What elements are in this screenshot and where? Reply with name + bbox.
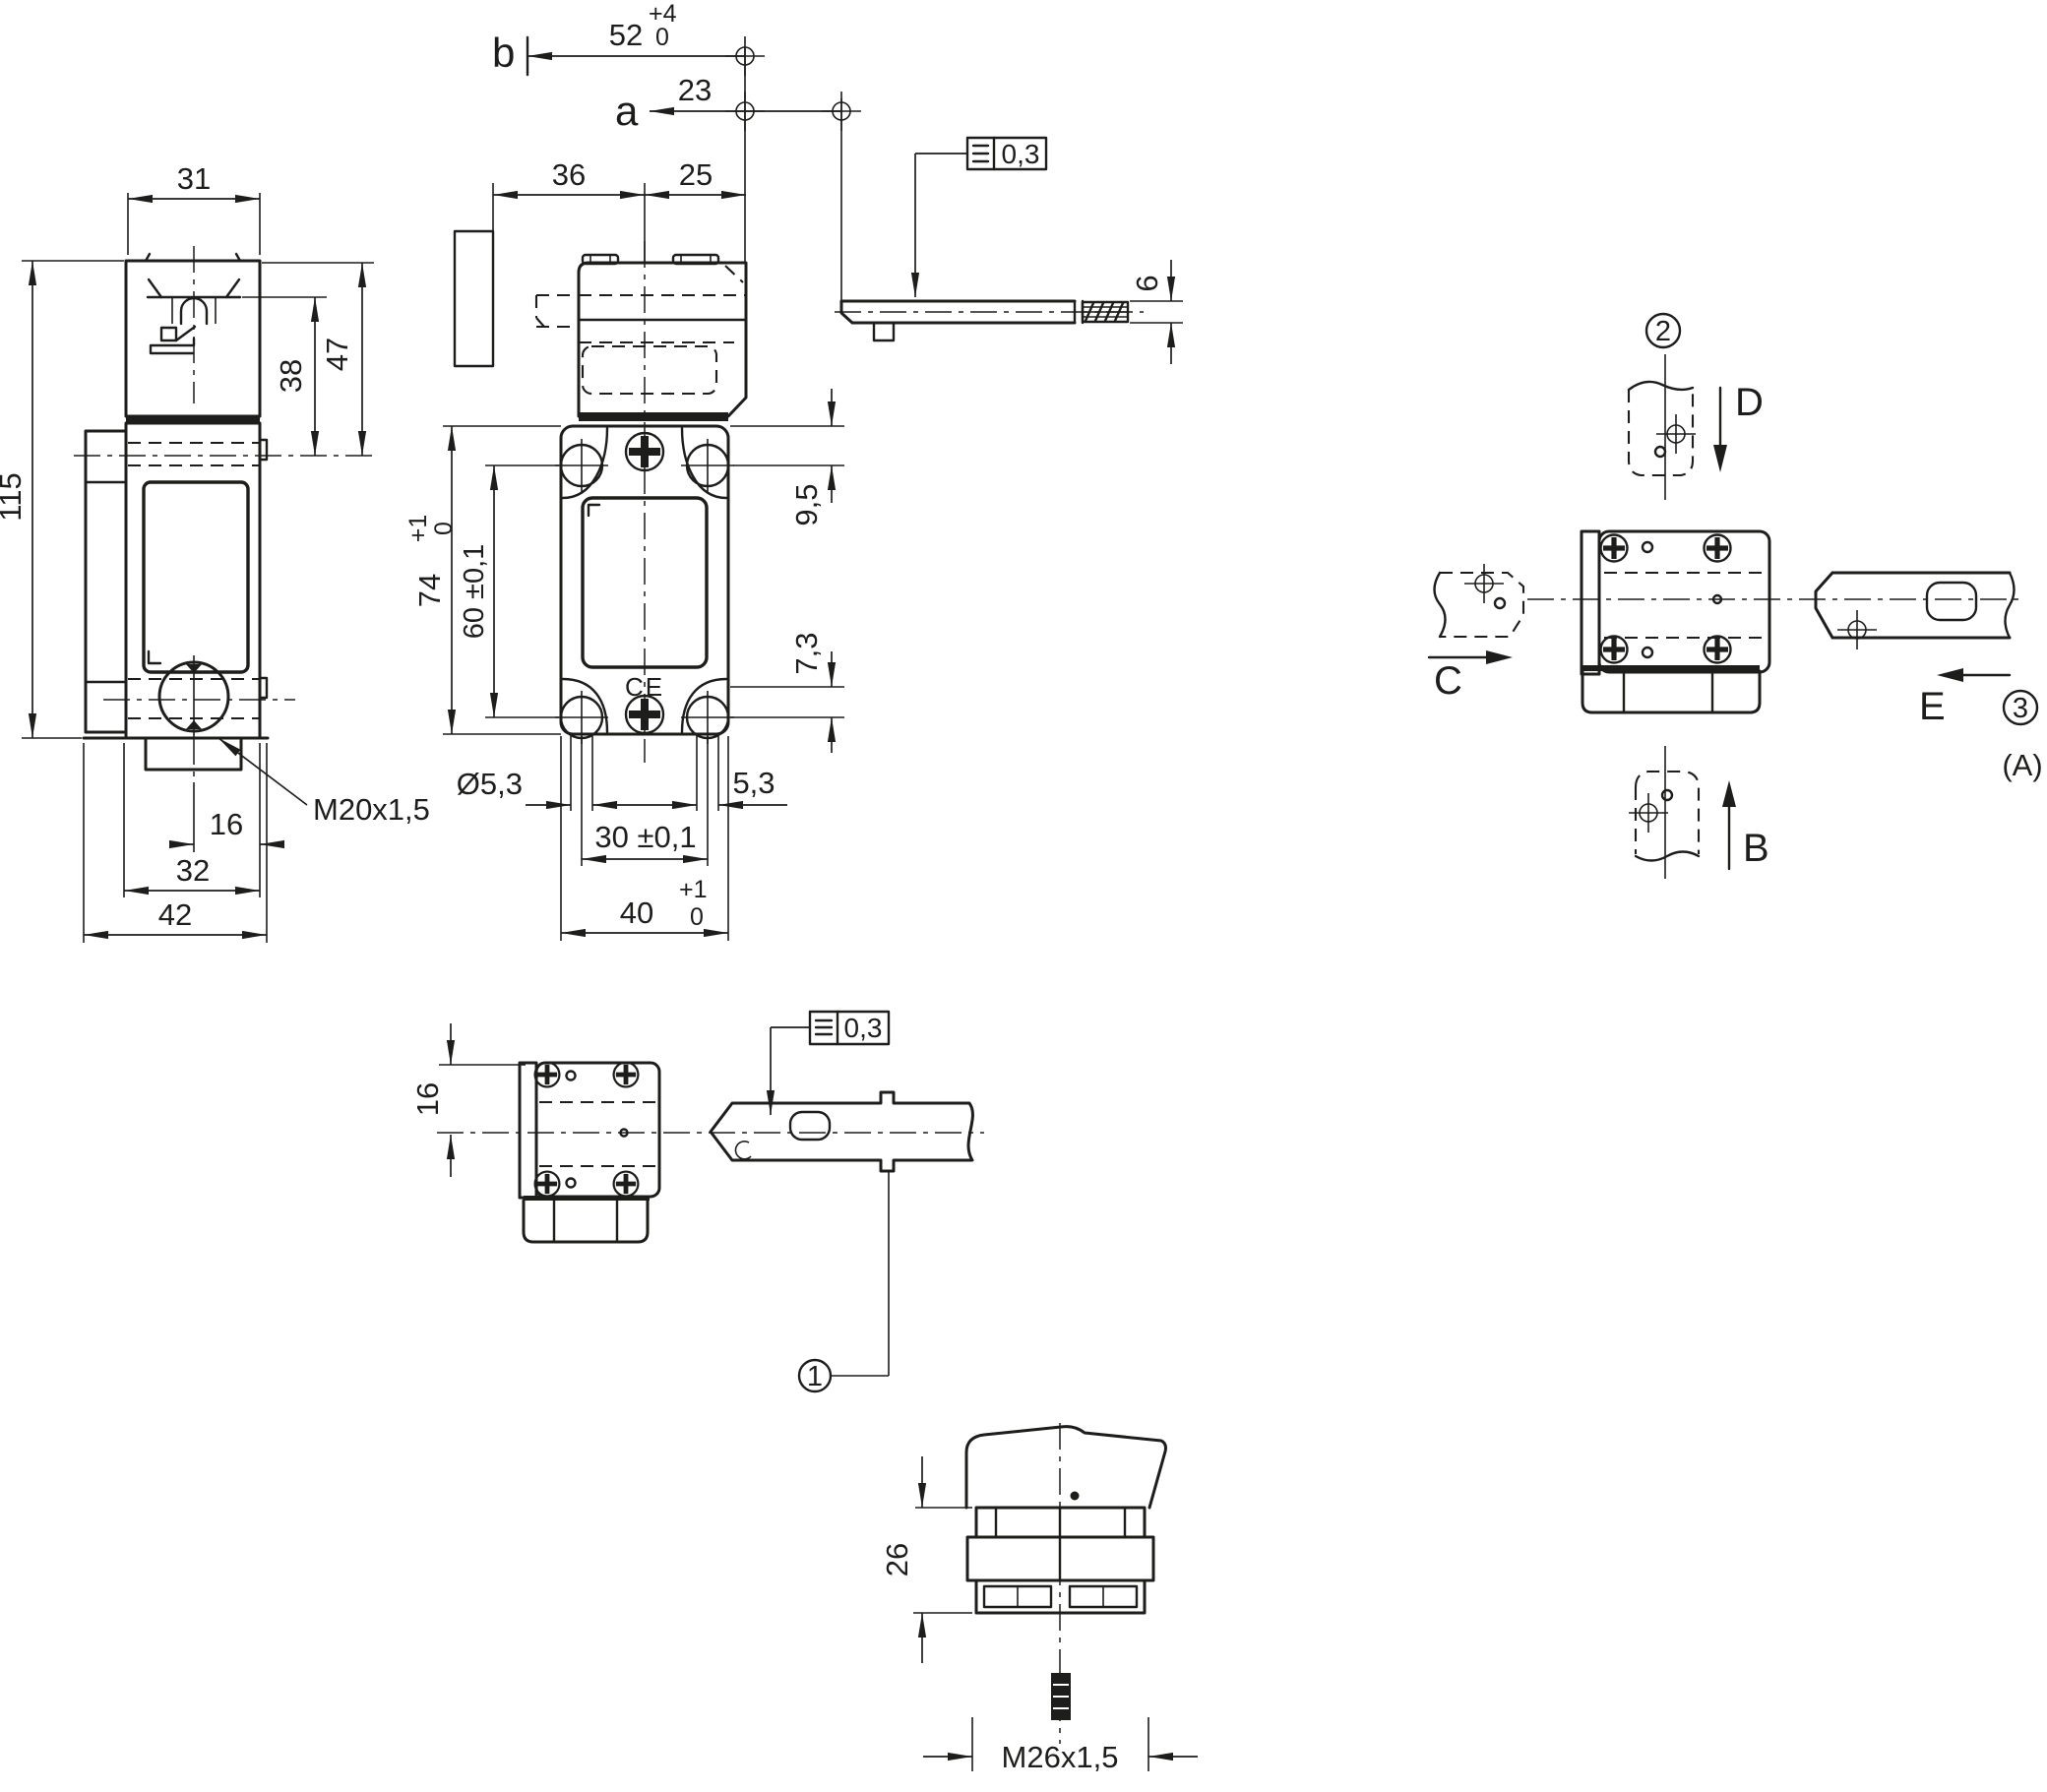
callout-2: 2	[1646, 314, 1680, 347]
dim-body-width-tol-upper: +1	[679, 876, 708, 903]
dim-body-height: 74	[412, 574, 447, 607]
direction-c-label: C	[1434, 659, 1462, 703]
dim-slot-width: 5,3	[732, 766, 775, 800]
dim-wall-to-center: 36	[552, 157, 586, 192]
dim-total-height: 115	[0, 472, 28, 521]
position-target-icon	[1837, 610, 1877, 649]
label-a: a	[615, 88, 639, 134]
ref-a-label: (A)	[2002, 748, 2042, 782]
position-target-icon	[1464, 564, 1504, 603]
callout-3: 3 (A)	[2002, 691, 2042, 782]
tolerance-frame: 0,3	[915, 138, 1046, 297]
front-view-dimensions: 74 +1 0 60 ±0,1 9,5 7,3 Ø5,3 5,3 30 ±0,1	[404, 389, 844, 941]
dim-hole-pitch-vertical: 60 ±0,1	[459, 544, 490, 640]
callout-3-number: 3	[2013, 693, 2028, 724]
ce-mark: CE	[625, 672, 664, 702]
dim-hole-pitch-horizontal: 30 ±0,1	[594, 820, 696, 854]
dim-half-height: 16	[410, 1082, 445, 1116]
phillips-screw-icon	[626, 433, 663, 470]
arrow-down-icon	[1713, 445, 1727, 472]
dim-gland-offset: 16	[210, 807, 243, 841]
dim-body-height-tol-lower: 0	[430, 522, 458, 535]
tolerance-value: 0,3	[1002, 139, 1040, 169]
dim-body-width-tol-lower: 0	[690, 903, 704, 931]
dim-hole-top-offset: 9,5	[789, 483, 824, 525]
dim-travel-b-tol-lower: 0	[655, 24, 669, 51]
head-top-view	[520, 1063, 659, 1242]
half-height-dimension: 16	[410, 1023, 526, 1177]
dim-body-width: 40	[620, 896, 653, 930]
direction-e: E	[1919, 668, 2010, 728]
dim-total-width: 42	[158, 897, 192, 932]
technical-drawing-page: 31 47 38 115 M20x1,5 16 32 42	[0, 0, 2047, 1792]
tolerance-frame: 0,3	[771, 1012, 889, 1115]
phillips-screw-icon	[535, 1063, 560, 1087]
phillips-screw-icon	[1705, 637, 1731, 663]
dim-head-height: 47	[320, 338, 354, 371]
dim-body-height-tol-upper: +1	[404, 515, 432, 543]
top-view: 16 0,3	[410, 1012, 984, 1392]
arrow-left-icon	[1937, 668, 1963, 682]
actuator-side-view: 0,3 6	[835, 138, 1183, 364]
phillips-screw-icon	[614, 1063, 639, 1087]
callout-2-number: 2	[1655, 316, 1671, 347]
front-view: b 52 +4 0 a 23 36 25	[404, 0, 861, 941]
head-top-view	[1527, 531, 2025, 712]
dim-travel-a: 23	[678, 73, 712, 107]
dim-body-width: 32	[176, 853, 210, 888]
dim-lever-height: 38	[274, 359, 308, 393]
actuator-from-left	[1435, 564, 1524, 637]
callout-1: 1	[799, 1171, 889, 1392]
dim-hole-bottom-offset: 7,3	[789, 632, 824, 674]
side-view-dimensions: 31 47 38 115 M20x1,5 16 32 42	[0, 161, 430, 943]
direction-b: B	[1722, 780, 1769, 870]
mounting-wall-hatch	[455, 231, 493, 366]
symmetry-symbol-icon	[973, 146, 988, 161]
phillips-screw-icon	[1601, 637, 1628, 663]
seal-band	[579, 412, 728, 421]
phillips-screw-icon	[1705, 535, 1731, 562]
phillips-screw-icon	[535, 1172, 560, 1197]
dim-hole-diameter: Ø5,3	[457, 767, 523, 801]
thickness-dimension: 6	[1130, 260, 1183, 364]
dim-depth: 26	[880, 1543, 914, 1576]
dimension-drawing-canvas: 31 47 38 115 M20x1,5 16 32 42	[0, 0, 2047, 1792]
orientation-diagram: 2 D	[1429, 314, 2043, 879]
side-view-body	[74, 423, 374, 782]
dim-center-to-face: 25	[679, 157, 713, 192]
symmetry-symbol-icon	[816, 1020, 832, 1034]
actuator-from-bottom	[1629, 746, 1699, 879]
side-view: 31 47 38 115 M20x1,5 16 32 42	[0, 161, 430, 943]
direction-e-label: E	[1919, 685, 1946, 728]
phillips-screw-icon	[1601, 535, 1628, 562]
housing-bottom-wedge	[966, 1427, 1166, 1508]
direction-d-label: D	[1735, 381, 1764, 424]
actuator-top-view	[711, 1092, 972, 1171]
tolerance-value: 0,3	[844, 1013, 883, 1043]
dim-travel-b: 52	[609, 18, 643, 52]
direction-d: D	[1713, 381, 1764, 472]
phillips-screw-icon	[614, 1172, 639, 1197]
arrow-up-icon	[1722, 780, 1736, 807]
actuator-blade	[835, 301, 1144, 340]
thread-label: M26x1,5	[1002, 1740, 1119, 1774]
actuator-from-right	[1816, 573, 2015, 649]
direction-b-label: B	[1743, 827, 1769, 870]
callout-1-number: 1	[807, 1361, 823, 1392]
thread-dimension: M26x1,5	[923, 1717, 1198, 1774]
arrow-right-icon	[1486, 650, 1513, 664]
mounting-hole-icon	[555, 439, 608, 492]
label-b: b	[492, 30, 515, 76]
mounting-hole-icon	[681, 439, 734, 492]
direction-c: C	[1429, 650, 1513, 703]
dim-thickness: 6	[1130, 275, 1164, 291]
actuator-from-top	[1629, 354, 1696, 500]
connector-detail-view: 26 M26x1,5	[880, 1423, 1198, 1774]
side-view-head	[126, 246, 260, 423]
thread-label: M20x1,5	[313, 792, 430, 827]
dim-head-width: 31	[177, 161, 211, 196]
crimp-pin	[1051, 1673, 1071, 1720]
depth-dimension: 26	[880, 1456, 972, 1663]
cover-window	[144, 482, 248, 672]
